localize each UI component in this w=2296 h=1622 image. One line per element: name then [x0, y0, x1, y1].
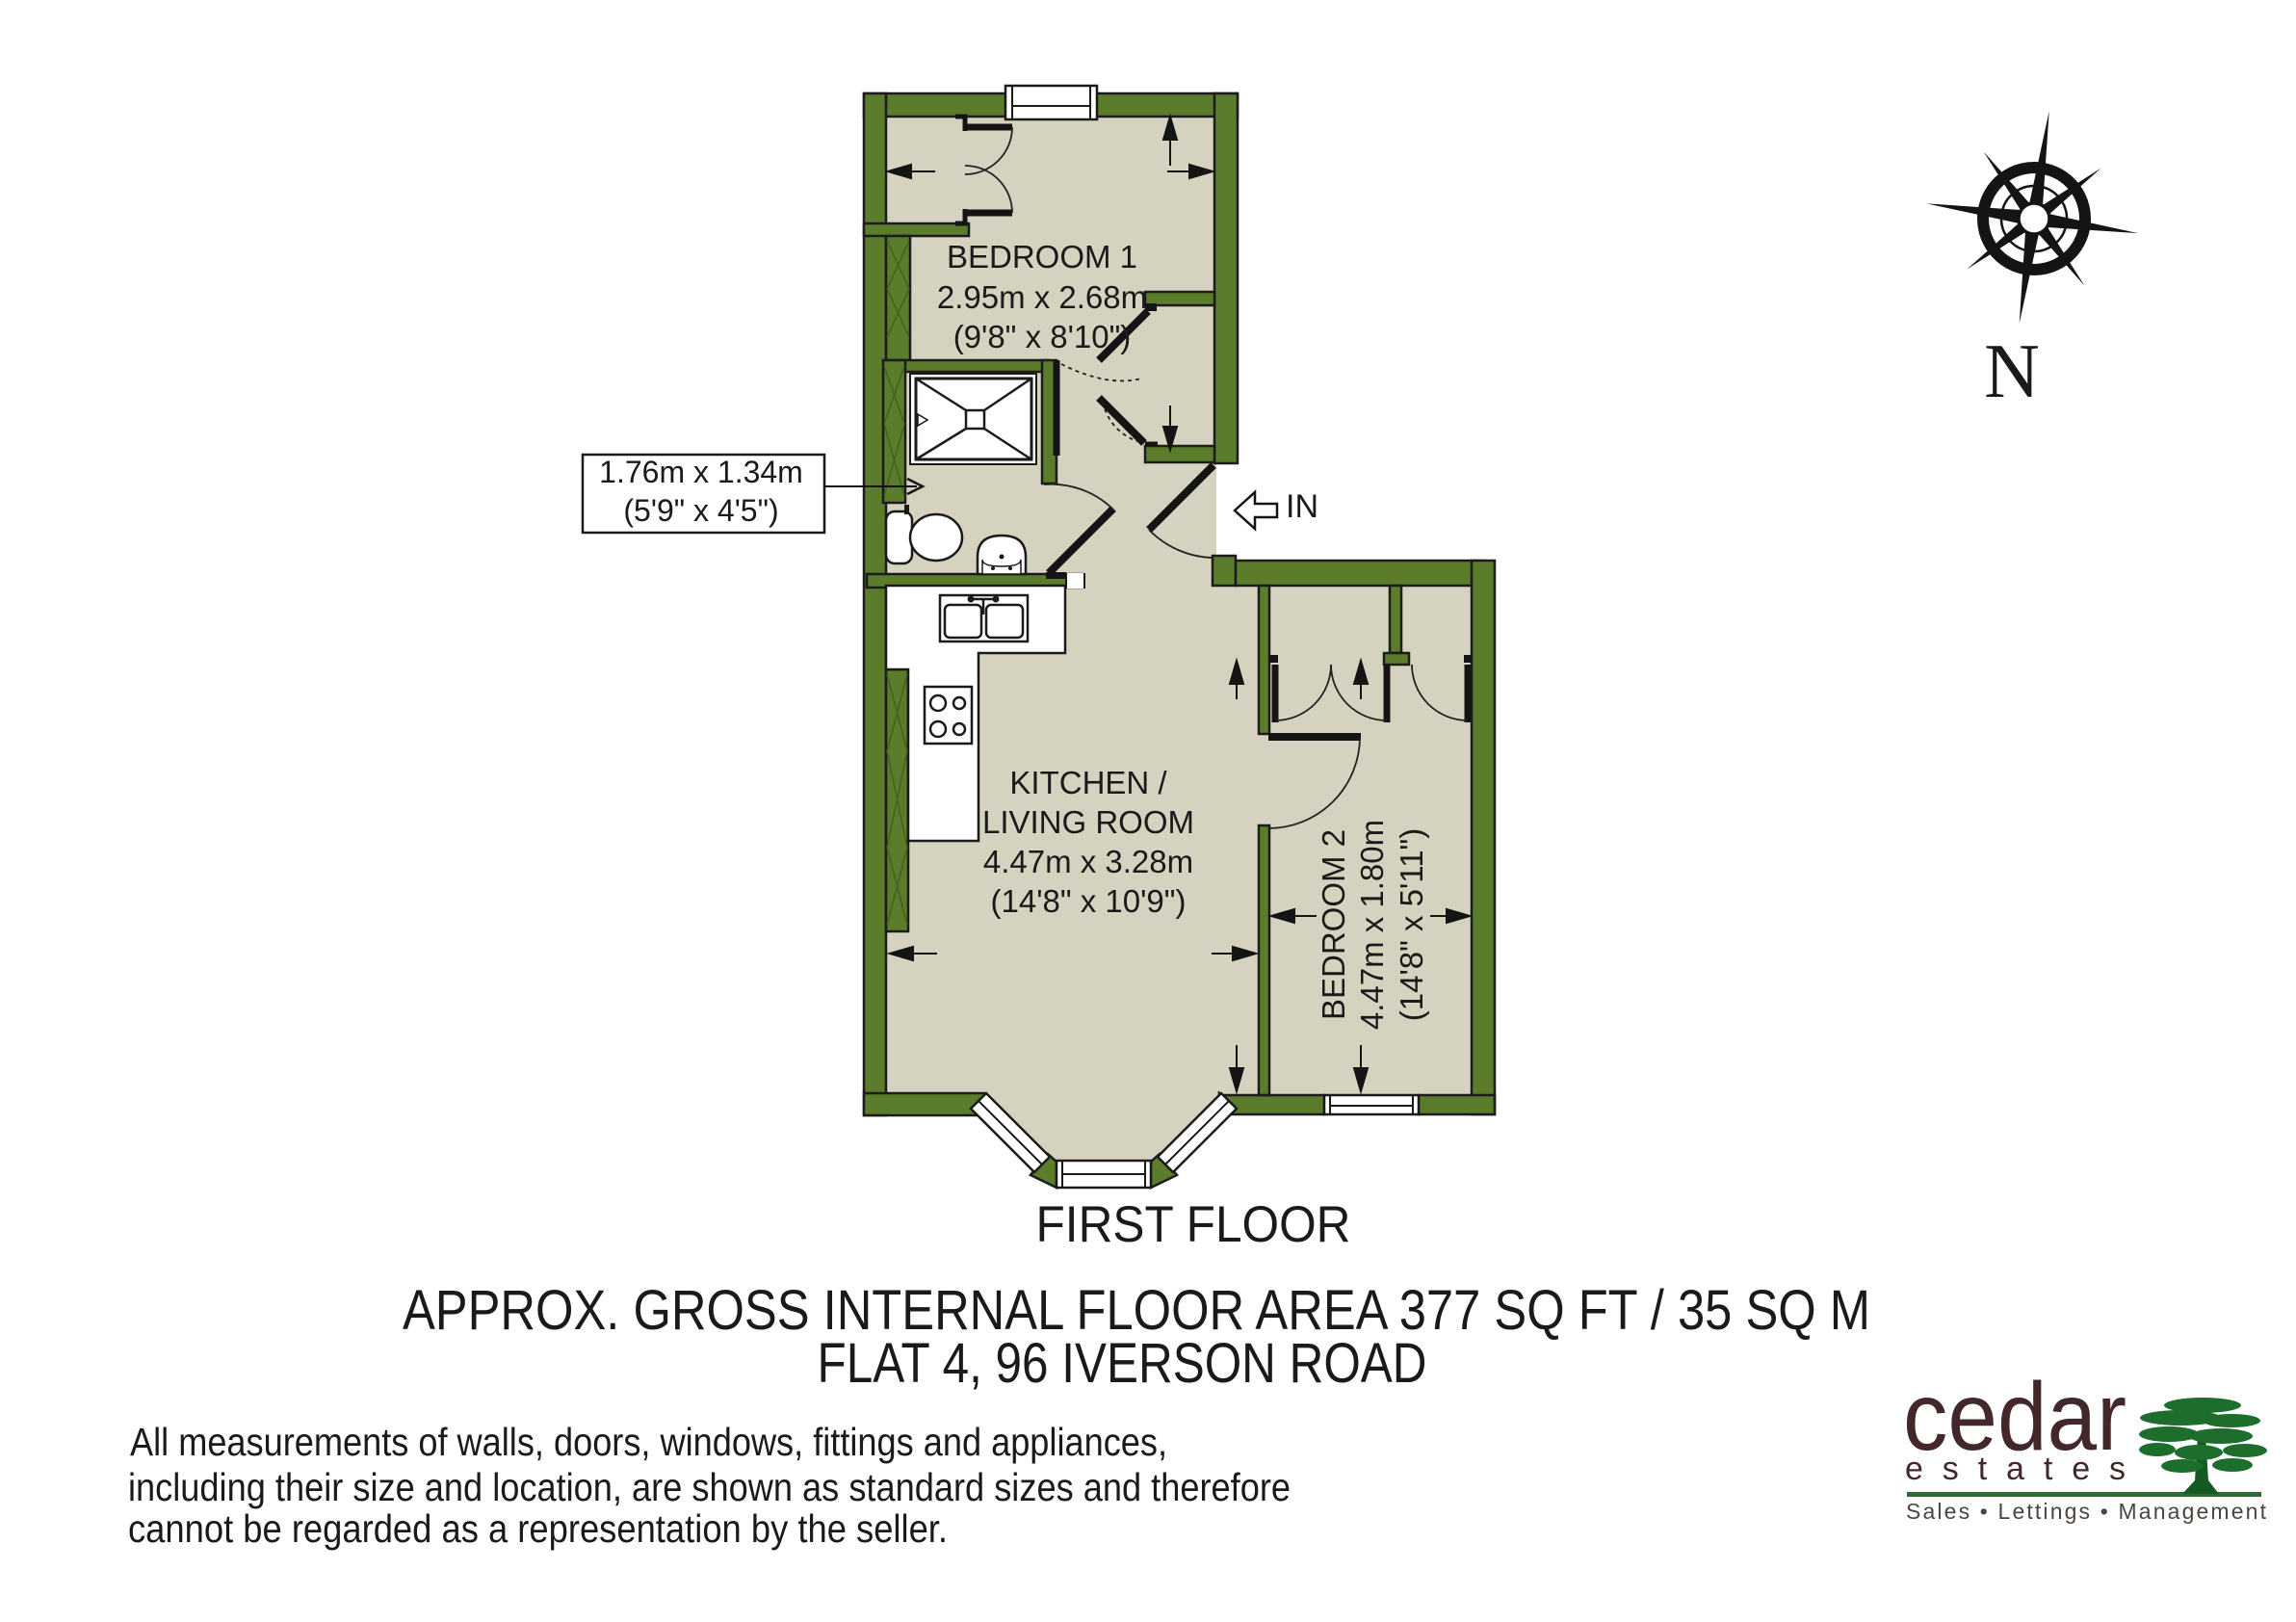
svg-text:(14'8" x 5'11"): (14'8" x 5'11"): [1394, 828, 1429, 1022]
svg-text:Sales • Lettings • Management: Sales • Lettings • Management: [1906, 1499, 2267, 1524]
svg-text:BEDROOM 2: BEDROOM 2: [1316, 829, 1351, 1020]
svg-text:FIRST FLOOR: FIRST FLOOR: [1036, 1196, 1351, 1253]
svg-text:N: N: [1984, 329, 2040, 414]
svg-text:KITCHEN /: KITCHEN /: [1009, 765, 1167, 800]
svg-text:LIVING ROOM: LIVING ROOM: [982, 804, 1194, 840]
svg-text:All measurements of walls, doo: All measurements of walls, doors, window…: [130, 1420, 1167, 1464]
svg-text:1.76m x 1.34m: 1.76m x 1.34m: [599, 455, 803, 489]
svg-text:(14'8" x 10'9"): (14'8" x 10'9"): [991, 883, 1187, 919]
svg-text:IN: IN: [1286, 488, 1318, 525]
svg-text:(5'9" x 4'5"): (5'9" x 4'5"): [623, 493, 778, 528]
svg-text:BEDROOM 1: BEDROOM 1: [947, 239, 1137, 275]
svg-text:including their size and locat: including their size and location, are s…: [128, 1465, 1291, 1509]
svg-text:FLAT 4, 96 IVERSON ROAD: FLAT 4, 96 IVERSON ROAD: [818, 1332, 1427, 1395]
svg-text:(9'8" x 8'10"): (9'8" x 8'10"): [953, 319, 1132, 354]
svg-text:4.47m x 3.28m: 4.47m x 3.28m: [983, 844, 1193, 879]
svg-text:2.95m x 2.68m: 2.95m x 2.68m: [937, 279, 1147, 315]
svg-text:4.47m x 1.80m: 4.47m x 1.80m: [1354, 820, 1390, 1030]
svg-text:cannot be regarded as a repres: cannot be regarded as a representation b…: [128, 1506, 948, 1551]
